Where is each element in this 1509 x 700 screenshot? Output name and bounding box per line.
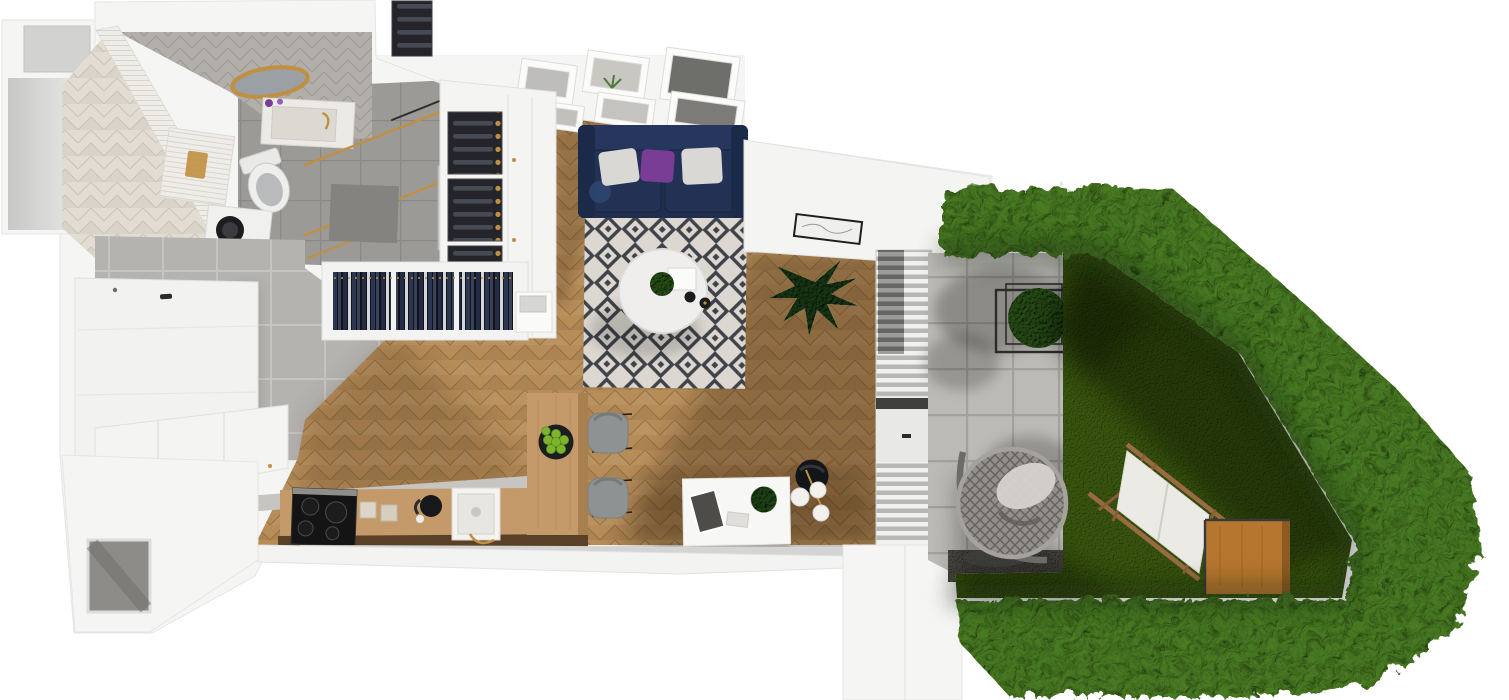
apple-bowl (539, 425, 574, 460)
floorplan-svg (0, 0, 1509, 700)
panel-handle (160, 294, 172, 300)
hanging-clothes (459, 272, 513, 330)
cube-table (1205, 520, 1290, 594)
tub-deck (160, 128, 235, 207)
cup (685, 292, 696, 303)
breakfast-bar (527, 393, 588, 535)
desk (682, 477, 790, 546)
pillow-white (681, 147, 723, 185)
sink (452, 488, 500, 543)
hanging-clothes (396, 272, 454, 330)
pillow-white (598, 148, 640, 187)
frame (582, 50, 649, 100)
cooktop (291, 488, 357, 546)
louver-outside (878, 250, 904, 354)
canister (360, 502, 376, 518)
building (2, 0, 992, 700)
table-plant (650, 272, 674, 296)
sofa (578, 125, 748, 218)
drawer-unit (516, 292, 552, 332)
pillow-purple (640, 149, 675, 183)
outdoor (924, 184, 1480, 692)
shower-mat (329, 184, 399, 243)
wine-shelf (448, 112, 502, 174)
canister (381, 505, 397, 521)
sliding-door (876, 396, 932, 462)
bar-chair (588, 478, 632, 518)
keyboard (726, 512, 748, 527)
left-cabinet-block (62, 455, 258, 632)
bar-chair (588, 413, 632, 453)
open-wardrobe (322, 262, 552, 340)
hanging-clothes (333, 272, 391, 330)
washbasin (261, 98, 355, 149)
wine-shelf (448, 179, 502, 241)
floorplan-render (0, 0, 1509, 700)
